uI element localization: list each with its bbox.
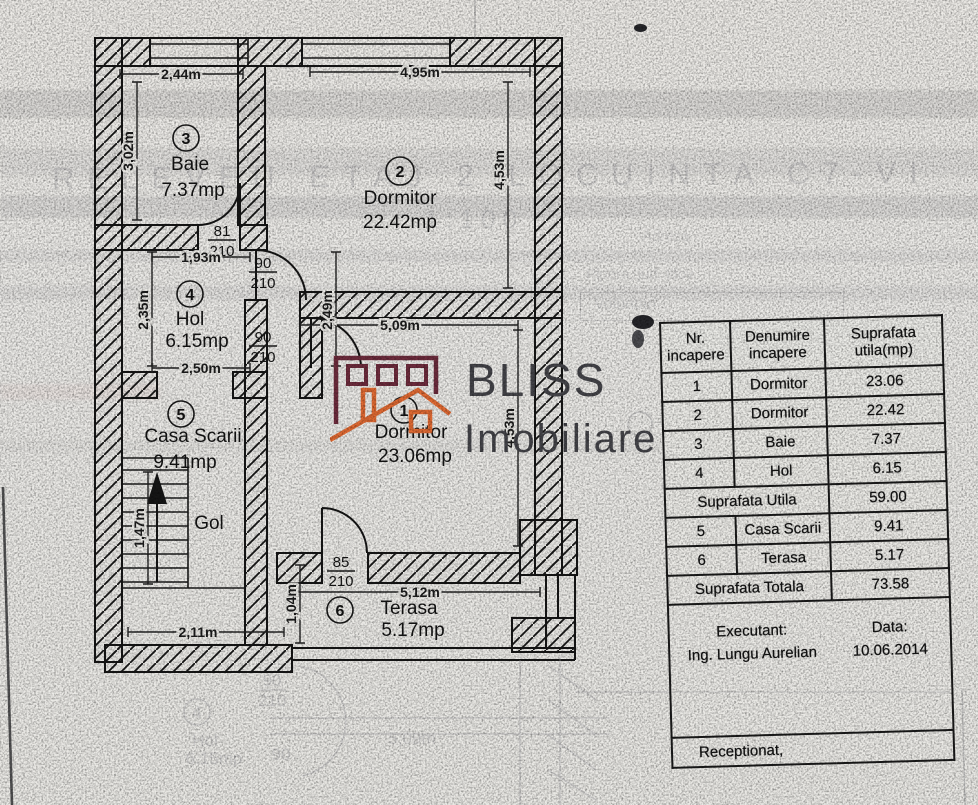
door-size: 85 <box>333 554 350 571</box>
cell-nr: 5 <box>665 516 736 547</box>
room-label-dormitor2: 2 Dormitor 22.42mp <box>363 157 437 233</box>
cell-name: Hol <box>734 455 829 487</box>
header-nr: Nr. incapere <box>660 321 731 373</box>
cell-area: 7.37 <box>827 423 946 455</box>
areas-table: Nr. incapere Denumire incapere Suprafata… <box>659 314 955 769</box>
date-label: Data: <box>831 614 948 640</box>
room-number: 2 <box>396 164 405 181</box>
receptionat-row: Receptionat, <box>672 730 955 768</box>
cell-area: 9.41 <box>829 510 948 542</box>
cell-name: Dormitor <box>731 368 826 400</box>
room-area: 7.37mp <box>161 180 224 201</box>
room-number: 4 <box>186 287 195 304</box>
door-size: 210 <box>250 349 275 366</box>
room-name: Casa Scarii <box>144 426 241 447</box>
ink-blob <box>634 24 647 32</box>
dim-label: 2,44m <box>161 66 201 82</box>
dim-label: 1,04m <box>283 584 299 624</box>
room-label-casa-scarii: 5 Casa Scarii 9.41mp <box>144 401 241 473</box>
svg-text:6.15mp: 6.15mp <box>186 749 243 768</box>
door-size: 90 <box>255 329 272 346</box>
dim-label: 4,95m <box>400 64 440 80</box>
room-name: Terasa <box>380 598 437 619</box>
room-number: 1 <box>400 403 409 420</box>
cell-nr: 1 <box>661 371 732 402</box>
room-label-terasa: 6 Terasa 5.17mp <box>327 597 445 641</box>
dim-label: 2,35m <box>135 290 151 330</box>
dim-label: 2,49m <box>319 290 335 330</box>
cell-nr: 3 <box>663 429 734 460</box>
cell-area: 5.17 <box>830 539 949 571</box>
stairs-up-arrow-icon <box>147 472 167 504</box>
room-area: 9.41mp <box>153 452 216 473</box>
receptionat-label: Receptionat, <box>672 730 955 768</box>
svg-text:90: 90 <box>272 745 291 764</box>
areas-table-sheet: Nr. incapere Denumire incapere Suprafata… <box>659 314 955 769</box>
executant-row: Executant: Ing. Lungu Aurelian Data: 10.… <box>668 597 954 738</box>
room-number: 6 <box>336 603 345 620</box>
date-value: 10.06.2014 <box>832 637 949 663</box>
svg-text:5,09m: 5,09m <box>388 729 435 748</box>
header-denumire: Denumire incapere <box>730 318 825 371</box>
cell-name: Terasa <box>736 542 831 574</box>
cell-name: Dormitor <box>732 397 827 429</box>
cell-nr: 4 <box>664 458 735 489</box>
cell-name: Casa Scarii <box>735 513 830 545</box>
scanned-floor-plan-page: RELEVEU ETAJ 2 LOCUINTA C7-VILA 7 1:100 … <box>0 0 978 805</box>
room-name: Hol <box>176 309 205 330</box>
cell-nr: 6 <box>666 545 737 576</box>
cell-area: 6.15 <box>828 452 947 484</box>
executant-block: Executant: Ing. Lungu Aurelian <box>671 617 832 668</box>
room-label-hol: 4 Hol 6.15mp <box>165 281 228 352</box>
svg-text:4: 4 <box>192 703 201 722</box>
room-label-dormitor1: 1 Dormitor 23.06mp <box>375 397 452 467</box>
room-name: Dormitor <box>375 422 449 443</box>
executant-name: Ing. Lungu Aurelian <box>672 641 833 669</box>
room-area: 23.06mp <box>378 446 452 467</box>
room-label-gol: Gol <box>194 513 224 534</box>
door-size: 81 <box>214 223 231 240</box>
subtotal-label: Suprafata Utila <box>665 484 830 518</box>
door-size-labels: 81 210 90 210 90 210 85 210 <box>208 223 355 590</box>
subtotal-value: 59.00 <box>829 481 948 513</box>
cell-name: Baie <box>733 426 828 458</box>
room-name: Gol <box>194 513 224 534</box>
dim-label: 1,93m <box>181 249 221 265</box>
dim-label: 1,47m <box>131 508 147 548</box>
dim-label: 4,53m <box>491 150 507 190</box>
room-area: 5.17mp <box>381 620 444 641</box>
date-block: Data: 10.06.2014 <box>831 614 948 664</box>
room-name: Dormitor <box>364 188 438 209</box>
header-suprafata: Suprafata utila(mp) <box>824 315 943 368</box>
room-area: 22.42mp <box>363 212 437 233</box>
cell-area: 22.42 <box>826 394 945 426</box>
room-area: 6.15mp <box>165 331 228 352</box>
ink-blob <box>632 330 644 348</box>
svg-text:90: 90 <box>263 671 282 690</box>
room-number: 3 <box>182 131 191 148</box>
total-value: 73.58 <box>831 568 950 600</box>
room-name: Baie <box>171 154 209 175</box>
total-label: Suprafata Totala <box>667 571 832 605</box>
table-header-row: Nr. incapere Denumire incapere Suprafata… <box>660 315 943 373</box>
room-label-baie: 3 Baie 7.37mp <box>161 125 224 201</box>
svg-text:210: 210 <box>258 691 286 710</box>
door-size: 210 <box>250 275 275 292</box>
ink-blob <box>632 315 654 329</box>
door-size: 90 <box>255 255 272 272</box>
dim-label: 2,50m <box>181 360 221 376</box>
dim-label: 5,09m <box>380 317 420 333</box>
room-number: 5 <box>177 407 186 424</box>
dim-label: 4,53m <box>501 408 517 448</box>
cell-area: 23.06 <box>825 365 944 397</box>
svg-text:Hol: Hol <box>192 731 218 750</box>
cell-nr: 2 <box>662 400 733 431</box>
dim-label: 3,02m <box>120 131 136 171</box>
dim-label: 2,11m <box>179 624 218 640</box>
door-size: 210 <box>328 573 353 590</box>
